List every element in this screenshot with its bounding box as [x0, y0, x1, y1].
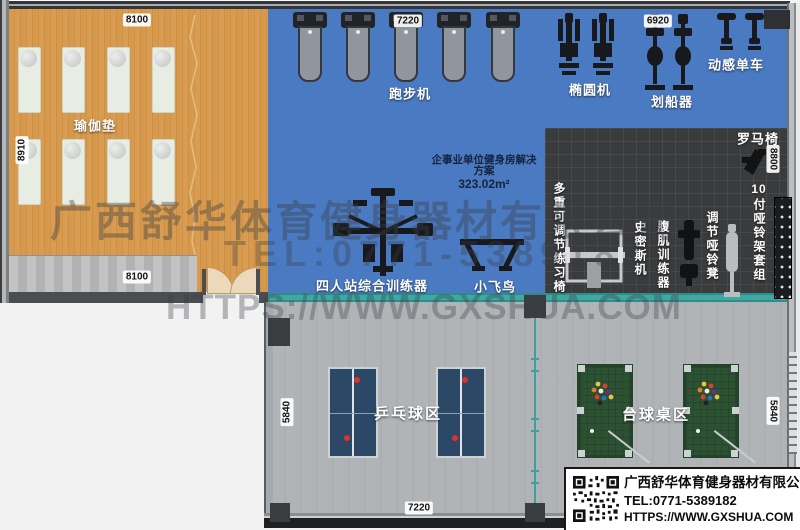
divider-tick: [531, 418, 539, 420]
treadmill-label: 跑步机: [389, 84, 431, 103]
four-station-trainer-icon: [333, 188, 433, 276]
door-post: [256, 269, 260, 295]
yoga-mat-icon: [62, 47, 85, 113]
yoga-zone-floor: [9, 9, 268, 293]
smith-machine-icon: [563, 228, 625, 292]
adjustable-bench-label: 调节哑铃凳: [704, 211, 721, 281]
dumbbell-rack-label: 付哑铃架套组: [751, 198, 768, 282]
dim-recreation-right: 5840: [767, 397, 780, 425]
divider-tick: [531, 482, 539, 484]
divider-tick: [531, 370, 539, 372]
spin-bike-icon: [744, 12, 765, 52]
pillow-icon: [154, 50, 171, 67]
cable-fly-label: 小飞鸟: [474, 277, 516, 296]
company-info-box: 广西舒华体育健身器材有限公司 TEL:0771-5389182 HTTPS://…: [564, 467, 800, 530]
dim-recreation-left: 5840: [281, 398, 294, 426]
ball-cluster-icon: [694, 379, 726, 405]
info-url: HTTPS://WWW.GXSHUA.COM: [624, 509, 800, 525]
yoga-entry-ramp: [9, 255, 197, 294]
yoga-mat-icon: [62, 139, 85, 205]
floor-crack-line: [188, 15, 200, 255]
elliptical-icon: [556, 13, 582, 77]
smith-machine-label: 史密斯机: [632, 221, 649, 277]
pillow-icon: [20, 50, 37, 67]
wall-post: [524, 295, 546, 318]
spin-bike-label: 动感单车: [708, 55, 764, 74]
radiator-strip: [789, 352, 797, 454]
dim-cardio-top: 7220: [394, 15, 422, 28]
rowing-machine-icon: [672, 14, 694, 92]
door-post: [202, 269, 206, 295]
dim-yoga-top: 8100: [123, 14, 151, 27]
top-wall: [0, 0, 790, 9]
dim-strength-right: 8800: [767, 145, 780, 173]
treadmill-icon: [437, 12, 471, 84]
pillow-icon: [154, 142, 171, 159]
divider-tick: [531, 430, 539, 432]
yoga-zone-label: 瑜伽垫: [74, 116, 116, 135]
yoga-mat-icon: [18, 47, 41, 113]
wall-post: [268, 318, 290, 346]
yoga-mat-icon: [152, 139, 175, 205]
wall-post: [525, 503, 545, 522]
pingpong-zone-label: 乒乓球区: [374, 403, 442, 424]
qr-code-icon: [573, 476, 619, 522]
wall-post: [270, 503, 290, 522]
elliptical-label: 椭圆机: [569, 80, 611, 99]
treadmill-icon: [293, 12, 327, 84]
plan-note: 企事业单位健身房解决 方案 323.02m²: [425, 155, 543, 189]
pingpong-table-icon: [436, 367, 486, 458]
dim-yoga-left: 8910: [16, 136, 29, 164]
ball-icon: [462, 377, 468, 383]
treadmill-icon: [486, 12, 520, 84]
pillow-icon: [64, 142, 81, 159]
elliptical-icon: [590, 13, 616, 77]
dim-rower-top: 6920: [644, 15, 672, 28]
pillow-icon: [64, 50, 81, 67]
divider-tick: [531, 470, 539, 472]
billiard-table-icon: [683, 364, 739, 458]
ab-trainer-icon: [676, 220, 702, 286]
ab-trainer-label: 腹肌训练器: [655, 220, 672, 290]
teal-divider-line: [534, 310, 536, 506]
pingpong-table-icon: [328, 367, 378, 458]
ball-icon: [452, 435, 458, 441]
rower-label: 划船器: [651, 92, 693, 111]
yoga-mat-icon: [152, 47, 175, 113]
dim-yoga-bottom: 8100: [123, 271, 151, 284]
info-company-name: 广西舒华体育健身器材有限公司: [624, 474, 800, 492]
ball-icon: [344, 435, 350, 441]
treadmill-icon: [341, 12, 375, 84]
billiard-zone-label: 台球桌区: [622, 404, 690, 425]
info-tel: TEL:0771-5389182: [624, 492, 800, 509]
divider-tick: [531, 358, 539, 360]
plan-note-line2: 方案: [425, 166, 543, 177]
dim-recreation-bottom: 7220: [405, 502, 433, 515]
top-right-wall-corner: [764, 10, 790, 29]
plan-note-area: 323.02m²: [425, 179, 543, 189]
spin-bike-icon: [716, 12, 737, 52]
gym-floor-plan: 瑜伽垫 跑步机 椭圆机 划船器 动感单车 四人站综合训练器 小飞鸟 罗马椅 乒乓…: [0, 0, 800, 530]
yoga-mat-icon: [107, 139, 130, 205]
cable-fly-icon: [458, 235, 526, 275]
ball-icon: [354, 377, 360, 383]
multi-bench-label: 多重可调节练习椅: [551, 182, 568, 294]
dumbbell-rack-icon: [774, 197, 792, 299]
adjustable-bench-icon: [722, 224, 742, 300]
pillow-icon: [109, 142, 126, 159]
pillow-icon: [109, 50, 126, 67]
four-station-trainer-label: 四人站综合训练器: [316, 276, 428, 295]
left-wall: [0, 0, 9, 303]
dumbbell-rack-label-number: 10: [751, 182, 766, 196]
ball-cluster-icon: [588, 379, 620, 405]
yoga-mat-icon: [107, 47, 130, 113]
roman-chair-icon: [742, 145, 768, 177]
